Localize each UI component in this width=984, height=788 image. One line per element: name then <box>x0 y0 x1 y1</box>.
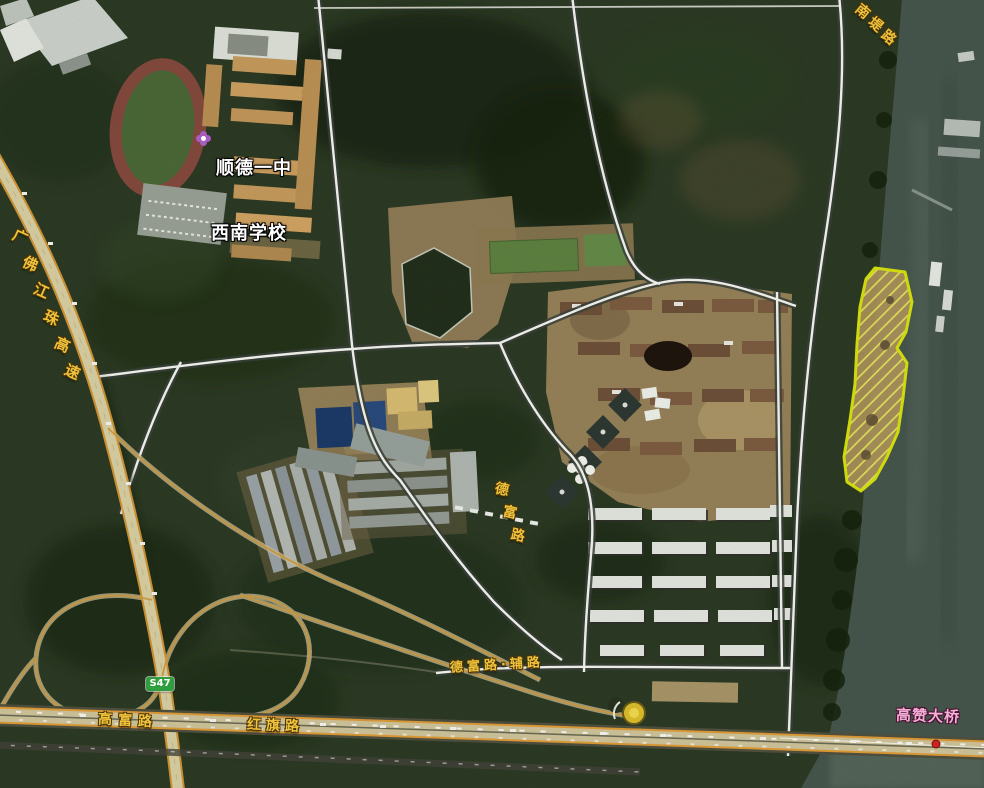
school-label-line1: 顺德一中 <box>216 158 292 180</box>
school-label-line2: 西南学校 <box>211 223 292 245</box>
school-flower-icon <box>201 136 206 141</box>
bridge-label: 高赞大桥 <box>896 706 961 726</box>
west-road-label: 高富路 <box>98 711 159 731</box>
satellite-map: 顺德一中 西南学校 德富路·辅路 高富路 红旗路 高赞大桥 S47 const … <box>0 0 984 788</box>
school-label: 顺德一中 西南学校 <box>216 115 292 266</box>
route-badge-s47: S47 <box>146 677 174 691</box>
east-road-label: 红旗路 <box>247 717 305 736</box>
